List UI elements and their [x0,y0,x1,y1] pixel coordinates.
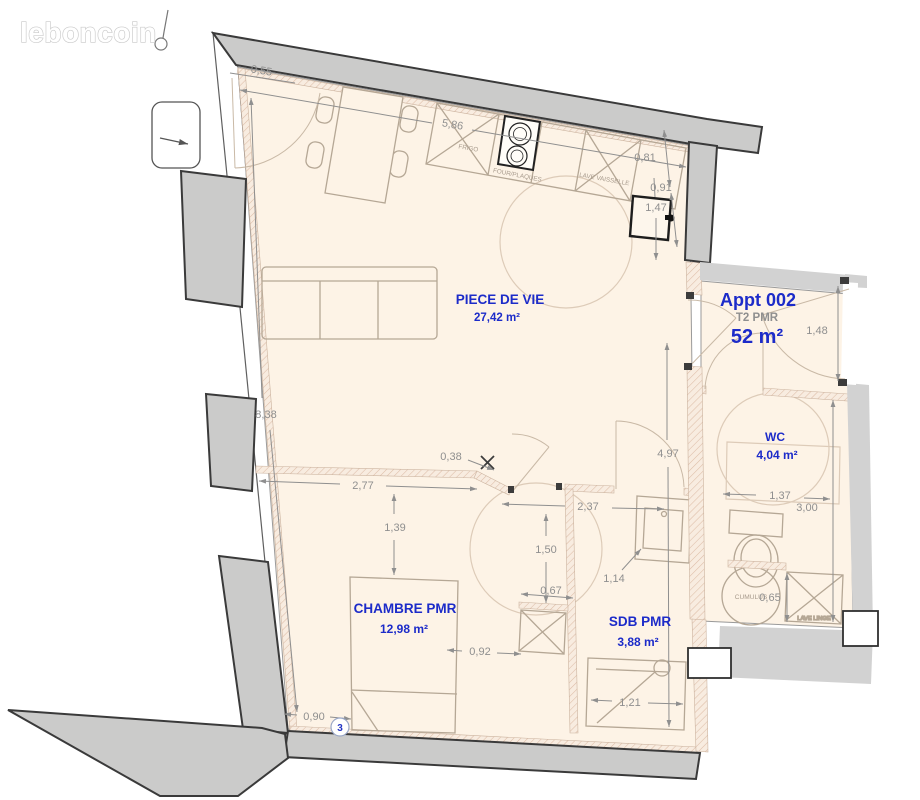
stair-landing-box [843,611,878,646]
stove [498,116,540,170]
dim-hall-width: 2,37 [577,501,598,513]
dim-wc-width: 1,37 [769,490,790,502]
dim-wc-length: 3,00 [796,502,817,514]
dim-turning-radius: 1,50 [535,544,556,556]
dim-hall-length: 4,97 [657,448,678,460]
chimney-stem [685,142,717,263]
apartment-type: T2 PMR [736,312,779,324]
living-room-name: PIECE DE VIE [456,292,545,307]
dim-bed-offset: 0,90 [303,711,324,723]
wc-area: 4,04 m² [756,448,797,462]
dim-washer-width: 0,65 [759,592,780,604]
entry-stoop [152,102,200,168]
floorplan-drawing: FRIGO FOUR/PLAQUES LAVE VAISSELLE [0,0,920,800]
bedroom-name: CHAMBRE PMR [354,601,457,616]
dim-vanity: 1,14 [603,573,624,585]
dim-partition-stub: 0,38 [440,451,461,463]
dim-closet-width: 0,92 [469,646,490,658]
apartment-area: 52 m² [731,326,784,348]
dim-closet-offset: 0,67 [540,585,561,597]
dim-shower: 1,21 [619,697,640,709]
survey-mark [155,10,168,50]
wc-name: WC [765,430,785,444]
bedroom-area: 12,98 m² [380,622,428,636]
dim-shaft: 1,47 [645,202,666,214]
bathroom-name: SDB PMR [609,614,672,629]
dim-bedroom-wall: 2,77 [352,480,373,492]
plan-marker-label: 3 [337,723,343,734]
dim-bedroom-clear: 1,39 [384,522,405,534]
living-room-area: 27,42 m² [474,312,520,324]
bathroom-area: 3,88 m² [617,635,658,649]
dim-kitchen-return: 0,81 [634,152,655,164]
step-box [688,648,731,678]
apartment-name: Appt 002 [720,290,796,310]
dim-left-wall: 8,38 [255,409,276,421]
left-pier-1 [181,171,246,307]
leboncoin-logo: leboncoin [20,17,157,48]
left-pier-2 [206,394,256,491]
floorplan-page: FRIGO FOUR/PLAQUES LAVE VAISSELLE [0,0,920,800]
dim-entry-door: 1,48 [806,325,827,337]
washer-label: LAVE LINGE [797,616,831,622]
plan-marker: 3 [331,718,349,736]
dim-corner-offset: 0,91 [650,182,671,194]
